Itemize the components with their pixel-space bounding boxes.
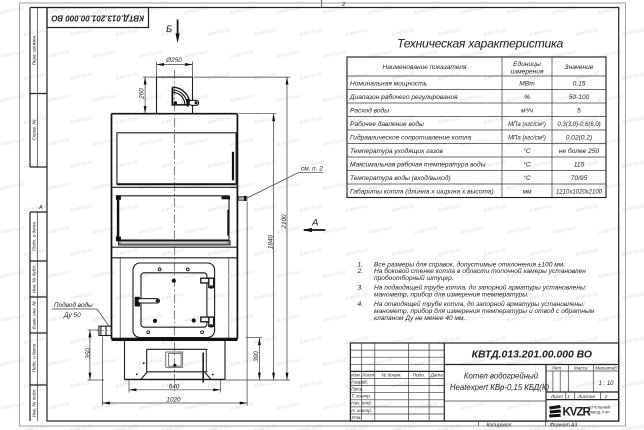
svg-text:Подп. и дата: Подп. и дата [32, 222, 37, 251]
svg-text:Подп.: Подп. [413, 372, 425, 377]
svg-text:МПа (кгс/см²): МПа (кгс/см²) [508, 122, 546, 128]
svg-text:5: 5 [577, 108, 581, 115]
svg-text:Габариты котла (длинна х ширин: Габариты котла (длинна х ширина х высота… [350, 188, 494, 196]
svg-text:Н. контр.: Н. контр. [351, 408, 372, 413]
svg-text:0,3(3,0)-0,6(6,0): 0,3(3,0)-0,6(6,0) [557, 122, 600, 128]
svg-text:МПа (кгс/см²): МПа (кгс/см²) [508, 136, 546, 142]
svg-text:Гидравлическое сопротивление к: Гидравлическое сопротивление котла [350, 134, 471, 142]
svg-text:Масштаб: Масштаб [595, 366, 617, 371]
svg-text:50-100: 50-100 [569, 94, 590, 101]
svg-text:300: 300 [253, 351, 260, 362]
svg-text:°С: °С [523, 174, 531, 182]
svg-text:мм: мм [522, 189, 532, 196]
svg-text:пробоотборный штуцер.: пробоотборный штуцер. [374, 274, 454, 282]
svg-text:№ докум.: № докум. [381, 372, 401, 377]
svg-text:Номинальная мощность: Номинальная мощность [350, 81, 428, 88]
svg-text:На боковой стенке котла в обла: На боковой стенке котла в области топочн… [374, 267, 586, 275]
svg-text:Подвод воды: Подвод воды [54, 301, 93, 309]
svg-text:Лит.: Лит. [551, 366, 563, 371]
svg-text:Лист: Лист [550, 394, 563, 399]
svg-text:2100: 2100 [281, 214, 288, 230]
svg-text:манометр, прибор для измерения: манометр, прибор для измерения температу… [374, 291, 529, 299]
svg-text:Копировал: Копировал [487, 423, 512, 429]
svg-text:1 : 10: 1 : 10 [598, 381, 614, 387]
svg-text:КВТД.013.201.00.000 ВО: КВТД.013.201.00.000 ВО [51, 14, 144, 23]
svg-text:°С: °С [523, 161, 531, 169]
svg-text:см. п. 2: см. п. 2 [301, 166, 323, 173]
svg-text:ЗАВОД, РЭП: ЗАВОД, РЭП [589, 411, 610, 415]
svg-text:0,15: 0,15 [573, 81, 586, 88]
svg-text:Ду 50: Ду 50 [63, 312, 81, 319]
svg-text:измерения: измерения [511, 69, 544, 76]
svg-text:Инв. № подл.: Инв. № подл. [32, 389, 37, 418]
svg-text:°С: °С [523, 147, 531, 155]
svg-text:Т. контр.: Т. контр. [351, 394, 371, 399]
svg-text:манометр, прибор для измерения: манометр, прибор для измерения температу… [374, 307, 595, 315]
svg-text:Утв.: Утв. [351, 415, 361, 420]
svg-text:Дата: Дата [430, 372, 444, 377]
svg-text:640: 640 [169, 383, 180, 390]
svg-text:Единицы: Единицы [513, 60, 541, 68]
svg-text:КВТД.013.201.00.000 ВО: КВТД.013.201.00.000 ВО [472, 350, 592, 361]
svg-text:Листов: Листов [577, 394, 595, 399]
svg-text:2.: 2. [357, 268, 364, 275]
svg-text:На подводящей трубе котла, до: На подводящей трубе котла, до запорной а… [374, 284, 587, 292]
svg-text:Лист: Лист [361, 372, 374, 377]
svg-text:Ø250: Ø250 [165, 57, 182, 64]
svg-text:2: 2 [604, 394, 608, 399]
svg-text:не более 250: не более 250 [559, 147, 600, 155]
svg-text:%: % [524, 94, 530, 101]
svg-text:Значение: Значение [565, 64, 594, 71]
svg-text:Формат А3: Формат А3 [550, 423, 578, 429]
svg-text:клапаном Ду не менее 40 мм.: клапаном Ду не менее 40 мм. [374, 315, 466, 322]
svg-text:Подп. и дата: Подп. и дата [32, 343, 37, 372]
svg-text:70/95: 70/95 [571, 175, 588, 182]
svg-text:Максимальная рабочая температу: Максимальная рабочая температура воды [350, 161, 486, 169]
svg-text:А: А [311, 218, 318, 229]
svg-text:350: 350 [85, 348, 92, 359]
svg-text:1020: 1020 [166, 397, 181, 404]
svg-text:Инв. № дубл.: Инв. № дубл. [32, 265, 37, 293]
svg-text:м³/ч: м³/ч [521, 108, 534, 115]
svg-text:Масса: Масса [574, 366, 588, 371]
svg-text:Разраб.: Разраб. [351, 379, 368, 384]
svg-text:Изм.: Изм. [351, 372, 361, 377]
svg-text:Heatexpert КВр-0,15 КБД(К): Heatexpert КВр-0,15 КБД(К) [450, 383, 550, 392]
svg-text:Б: Б [166, 24, 172, 35]
svg-text:1210х1020х2100: 1210х1020х2100 [556, 190, 603, 196]
svg-text:Пров.: Пров. [351, 387, 363, 392]
svg-text:Котел водогрейный: Котел водогрейный [464, 372, 539, 381]
svg-text:Справ. №: Справ. № [32, 120, 37, 141]
svg-text:Наименование показателя: Наименование показателя [382, 64, 467, 71]
svg-text:МВт: МВт [519, 81, 535, 88]
svg-text:Температура воды (вход/выход): Температура воды (вход/выход) [350, 174, 451, 182]
svg-text:Температура уходящих газов: Температура уходящих газов [350, 147, 443, 155]
svg-text:Все размеры для справок, допус: Все размеры для справок, допустимые откл… [374, 260, 565, 268]
svg-text:Техническая характеристика: Техническая характеристика [397, 37, 564, 51]
svg-text:4.: 4. [358, 301, 364, 308]
svg-text:Перв. примен.: Перв. примен. [32, 35, 37, 66]
svg-text:KVZR: KVZR [563, 407, 592, 419]
svg-text:3.: 3. [358, 285, 364, 292]
svg-text:0,02(0,2): 0,02(0,2) [566, 135, 592, 142]
svg-text:115: 115 [574, 162, 585, 169]
svg-text:Расход воды: Расход воды [350, 107, 389, 115]
svg-text:КОТЕЛЬНЫЙ: КОТЕЛЬНЫЙ [589, 406, 611, 410]
svg-text:260: 260 [139, 88, 146, 100]
svg-text:1: 1 [567, 394, 570, 399]
svg-text:А: А [38, 205, 43, 211]
svg-text:1840: 1840 [267, 234, 274, 249]
svg-text:На отводящей трубе котла, до з: На отводящей трубе котла, до запорной ар… [374, 300, 585, 308]
svg-text:Взам. инв. №: Взам. инв. № [32, 301, 37, 329]
svg-text:Диапазон рабочего регулировани: Диапазон рабочего регулирования [349, 93, 458, 101]
svg-text:Нач. отд.: Нач. отд. [351, 401, 372, 406]
svg-text:Рабочее давление воды: Рабочее давление воды [350, 120, 424, 128]
